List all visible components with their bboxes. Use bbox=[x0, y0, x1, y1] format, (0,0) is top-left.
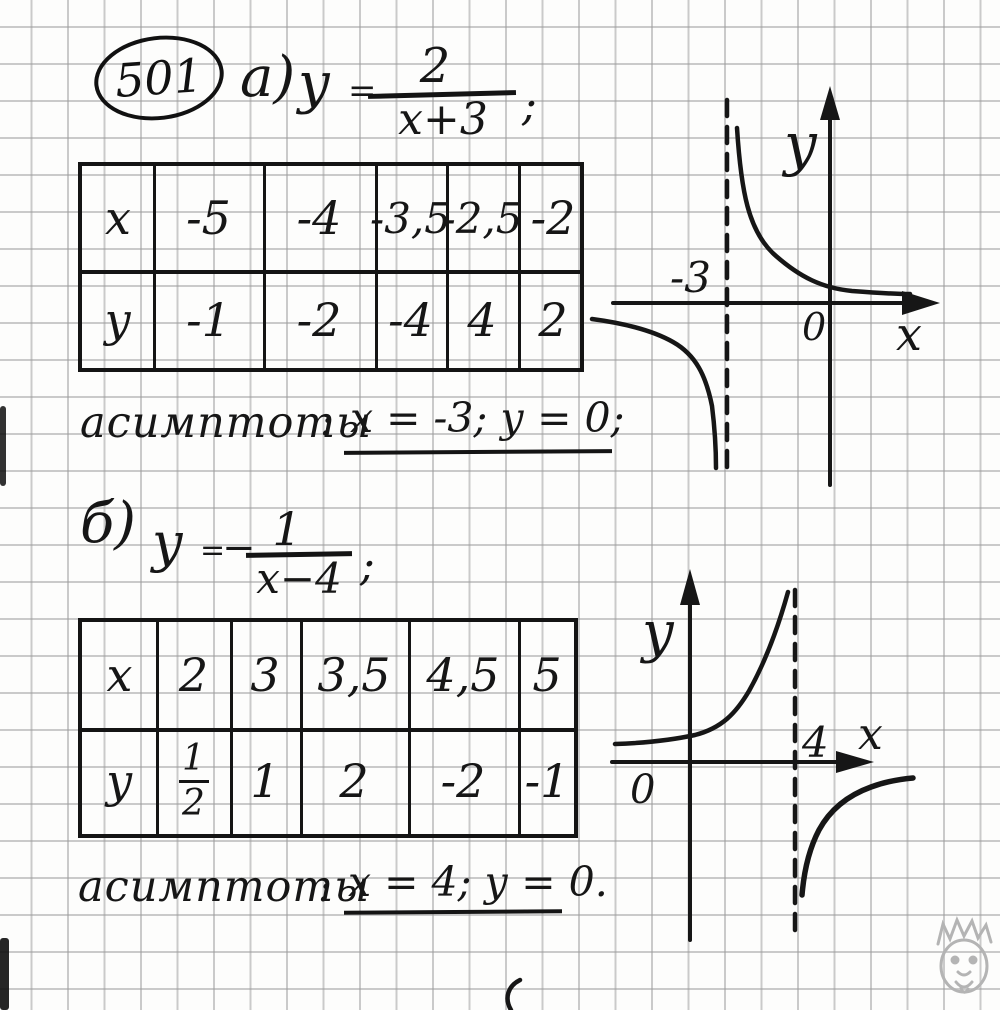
table-a-y-value: -1 bbox=[154, 270, 263, 370]
asymptote-b-colon: : bbox=[318, 868, 331, 908]
watermark-head bbox=[941, 940, 987, 992]
table-a-x-value: -3,5 bbox=[375, 166, 446, 270]
table-b-x-value: 2 bbox=[157, 622, 230, 728]
problem-number-badge: 501 bbox=[89, 28, 228, 127]
scan-edge-streak bbox=[0, 406, 6, 486]
asymptote-a-colon: : bbox=[320, 402, 333, 442]
table-a-y-value: 4 bbox=[446, 270, 518, 370]
watermark-eye-left bbox=[952, 957, 958, 963]
fraction-numerator: 1 bbox=[182, 741, 205, 777]
asymptote-b-underline bbox=[344, 909, 562, 915]
watermark-face-logo bbox=[928, 912, 1000, 1010]
formula-a-denominator: х+3 bbox=[370, 98, 516, 142]
graph-b-y-axis-arrow bbox=[680, 569, 700, 605]
graph-a-y-axis-label: у bbox=[781, 110, 818, 178]
table-b-x-value: 5 bbox=[518, 622, 576, 728]
watermark-mouth bbox=[956, 982, 972, 987]
formula-a-numerator: 2 bbox=[404, 42, 466, 90]
table-a-x-value: -2,5 bbox=[446, 166, 518, 270]
formula-b-denominator: х−4 bbox=[244, 558, 354, 600]
table-a-y-header: у bbox=[82, 270, 154, 370]
watermark-eye-right bbox=[970, 957, 976, 963]
graph-b-left-branch-curve bbox=[615, 592, 788, 744]
table-a-y-value: -4 bbox=[375, 270, 446, 370]
scan-edge-streak bbox=[0, 938, 9, 1010]
graph-b-x-axis-label: х bbox=[858, 709, 883, 760]
fraction-denominator: 2 bbox=[182, 786, 205, 822]
table-b-y-value: 1 bbox=[230, 728, 300, 834]
one-half-fraction: 1 2 bbox=[179, 741, 209, 822]
formula-a-terminator: ; bbox=[522, 84, 537, 128]
graph-a-lower-branch-curve bbox=[592, 319, 716, 468]
cutoff-handwriting-stroke bbox=[500, 978, 532, 1010]
table-b-x-header: х bbox=[82, 622, 157, 728]
table-a-x-value: -4 bbox=[263, 166, 375, 270]
table-a-y-value: -2 bbox=[263, 270, 375, 370]
part-a-label: а) bbox=[240, 50, 295, 106]
table-b-y-header: у bbox=[82, 728, 157, 834]
watermark-mustache bbox=[958, 972, 970, 975]
graph-b: у х 0 4 bbox=[600, 565, 945, 960]
table-a-x-header: х bbox=[82, 166, 154, 270]
table-b: х 2 3 3,5 4,5 5 у 1 2 1 2 -2 -1 bbox=[78, 618, 578, 838]
table-b-y-value: -1 bbox=[518, 728, 576, 834]
graph-b-asymptote-tick-label: 4 bbox=[801, 718, 829, 767]
part-b-label: б) bbox=[80, 496, 136, 552]
table-b-y-value: -2 bbox=[408, 728, 518, 834]
formula-b-terminator: ; bbox=[360, 544, 375, 588]
graph-b-right-branch-curve bbox=[802, 778, 913, 895]
graph-b-origin-label: 0 bbox=[630, 767, 655, 813]
table-b-y-fraction-cell: 1 2 bbox=[157, 728, 230, 834]
graph-a-origin-label: 0 bbox=[802, 305, 826, 349]
table-a-x-value: -5 bbox=[154, 166, 263, 270]
graph-a: у х 0 -3 bbox=[560, 60, 1000, 512]
table-b-x-value: 3 bbox=[230, 622, 300, 728]
graph-a-x-axis-label: х bbox=[896, 307, 922, 361]
graph-a-y-axis-arrow bbox=[820, 86, 840, 120]
watermark-tongue bbox=[961, 988, 968, 992]
formula-b-numerator: 1 bbox=[262, 506, 312, 552]
problem-number: 501 bbox=[113, 48, 204, 108]
table-b-x-value: 4,5 bbox=[408, 622, 518, 728]
formula-b-lhs: у bbox=[152, 516, 183, 570]
graph-a-upper-branch-curve bbox=[737, 128, 910, 294]
graph-b-y-axis-label: у bbox=[639, 600, 675, 665]
table-b-x-value: 3,5 bbox=[300, 622, 408, 728]
graph-a-asymptote-tick-label: -3 bbox=[670, 253, 711, 302]
formula-a-lhs: у bbox=[298, 56, 330, 112]
asymptote-b-value: х = 4; у = 0. bbox=[348, 862, 608, 903]
table-a: х -5 -4 -3,5 -2,5 -2 у -1 -2 -4 4 2 bbox=[78, 162, 584, 372]
table-b-y-value: 2 bbox=[300, 728, 408, 834]
notebook-page: 501 а) у = 2 х+3 ; х -5 -4 -3,5 -2,5 -2 … bbox=[0, 0, 1000, 1010]
